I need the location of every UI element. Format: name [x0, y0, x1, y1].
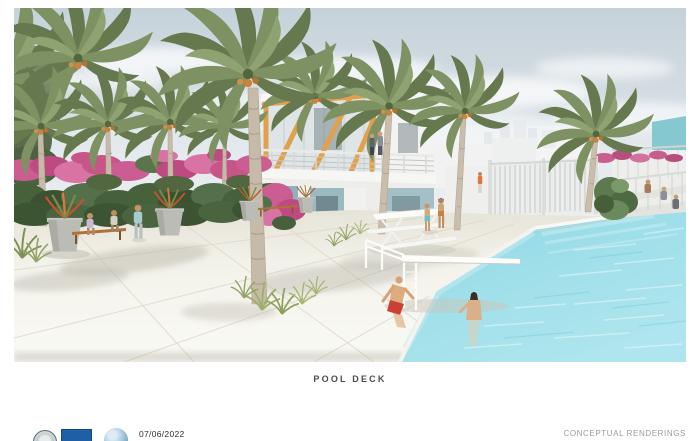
presentation-slide: POOL DECK 07/06/2022 CONCEPTUAL RENDERIN…	[0, 0, 700, 441]
date-label: 07/06/2022	[139, 429, 185, 439]
seal-logo-icon	[33, 430, 57, 441]
globe-logo-icon	[104, 428, 128, 441]
slide-caption: POOL DECK	[0, 374, 700, 384]
rendering-type-label: CONCEPTUAL RENDERINGS	[563, 429, 686, 438]
flag-logo-icon	[61, 429, 92, 441]
pool-deck-rendering-image	[14, 8, 686, 362]
rendering-frame	[14, 8, 686, 362]
